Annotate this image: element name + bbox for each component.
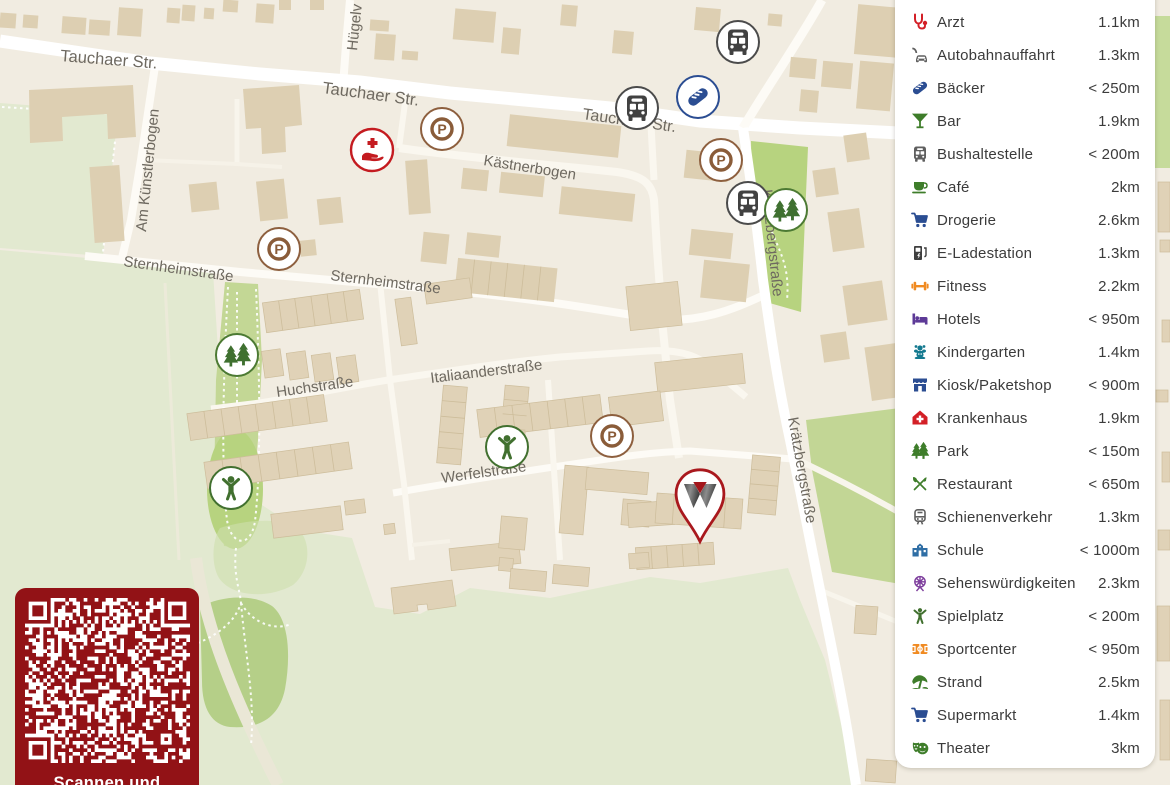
svg-text:Scannen und: Scannen und (54, 774, 161, 785)
